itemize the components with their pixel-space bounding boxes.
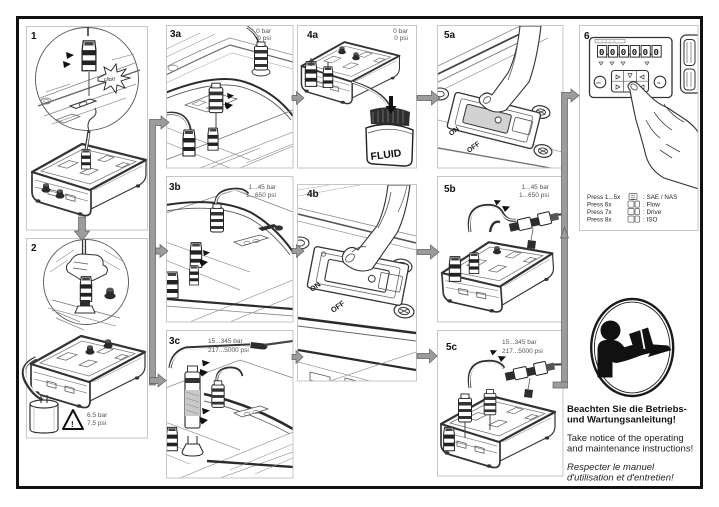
svg-text:: ISO: : ISO <box>643 217 657 224</box>
svg-text:0.: 0. <box>632 48 643 58</box>
svg-text:d'utilisation et d'entretien!: d'utilisation et d'entretien! <box>567 473 674 484</box>
svg-text:2: 2 <box>31 243 37 254</box>
svg-text:1...650 psi: 1...650 psi <box>519 192 549 199</box>
svg-text:ok: ok <box>657 81 661 85</box>
svg-text:und Wartungsanleitung!: und Wartungsanleitung! <box>567 415 676 426</box>
svg-text:0.: 0. <box>599 48 610 58</box>
svg-text:4a: 4a <box>307 30 319 41</box>
svg-text:3b: 3b <box>169 182 181 193</box>
svg-text:Press 1...5x: Press 1...5x <box>587 194 621 201</box>
svg-text:Press 8x: Press 8x <box>587 217 612 224</box>
svg-text:res: res <box>596 81 601 85</box>
svg-text:1...45 bar: 1...45 bar <box>522 184 550 191</box>
svg-text:Beachten Sie die Betriebs-: Beachten Sie die Betriebs- <box>567 404 687 415</box>
svg-text:1: 1 <box>31 31 37 42</box>
svg-text:217...5000 psi: 217...5000 psi <box>208 347 249 354</box>
svg-text:!: ! <box>71 420 74 429</box>
svg-text:Take notice of the operating: Take notice of the operating <box>567 433 684 444</box>
svg-text:and maintenance instructions!: and maintenance instructions! <box>567 444 693 455</box>
svg-text:4b: 4b <box>307 189 319 200</box>
svg-text:0.: 0. <box>610 48 621 58</box>
svg-text:5c: 5c <box>446 342 458 353</box>
svg-text:3a: 3a <box>170 29 182 40</box>
svg-text:click!: click! <box>104 77 116 83</box>
svg-text:0.: 0. <box>621 48 632 58</box>
svg-text:5b: 5b <box>444 184 456 195</box>
svg-text:1...650 psi: 1...650 psi <box>246 192 276 199</box>
svg-text:217...5000 psi: 217...5000 psi <box>502 348 543 355</box>
svg-text:0 bar: 0 bar <box>256 28 272 35</box>
svg-text:1...45 bar: 1...45 bar <box>249 184 277 191</box>
svg-text:: SAE / NAS: : SAE / NAS <box>643 194 677 201</box>
svg-text:: Flow: : Flow <box>643 202 660 209</box>
svg-text:6: 6 <box>584 31 590 42</box>
svg-text:Press 6x: Press 6x <box>587 202 612 209</box>
svg-text:6.5 bar: 6.5 bar <box>87 412 108 419</box>
svg-text:0 bar: 0 bar <box>393 28 409 35</box>
svg-text:0: 0 <box>654 48 659 58</box>
svg-text:3c: 3c <box>169 336 181 347</box>
svg-text:Press 7x: Press 7x <box>587 209 612 216</box>
svg-text:5a: 5a <box>444 30 456 41</box>
svg-text:0.: 0. <box>643 48 654 58</box>
svg-text:7.5 psi: 7.5 psi <box>87 420 106 427</box>
svg-text:15...345 bar: 15...345 bar <box>502 339 538 346</box>
svg-text:0 psi: 0 psi <box>394 35 408 42</box>
svg-text:: Drive: : Drive <box>643 209 662 216</box>
svg-text:15...345 bar: 15...345 bar <box>208 338 244 345</box>
svg-text:0 psi: 0 psi <box>257 35 271 42</box>
svg-text:Respecter le manuel: Respecter le manuel <box>567 462 655 473</box>
